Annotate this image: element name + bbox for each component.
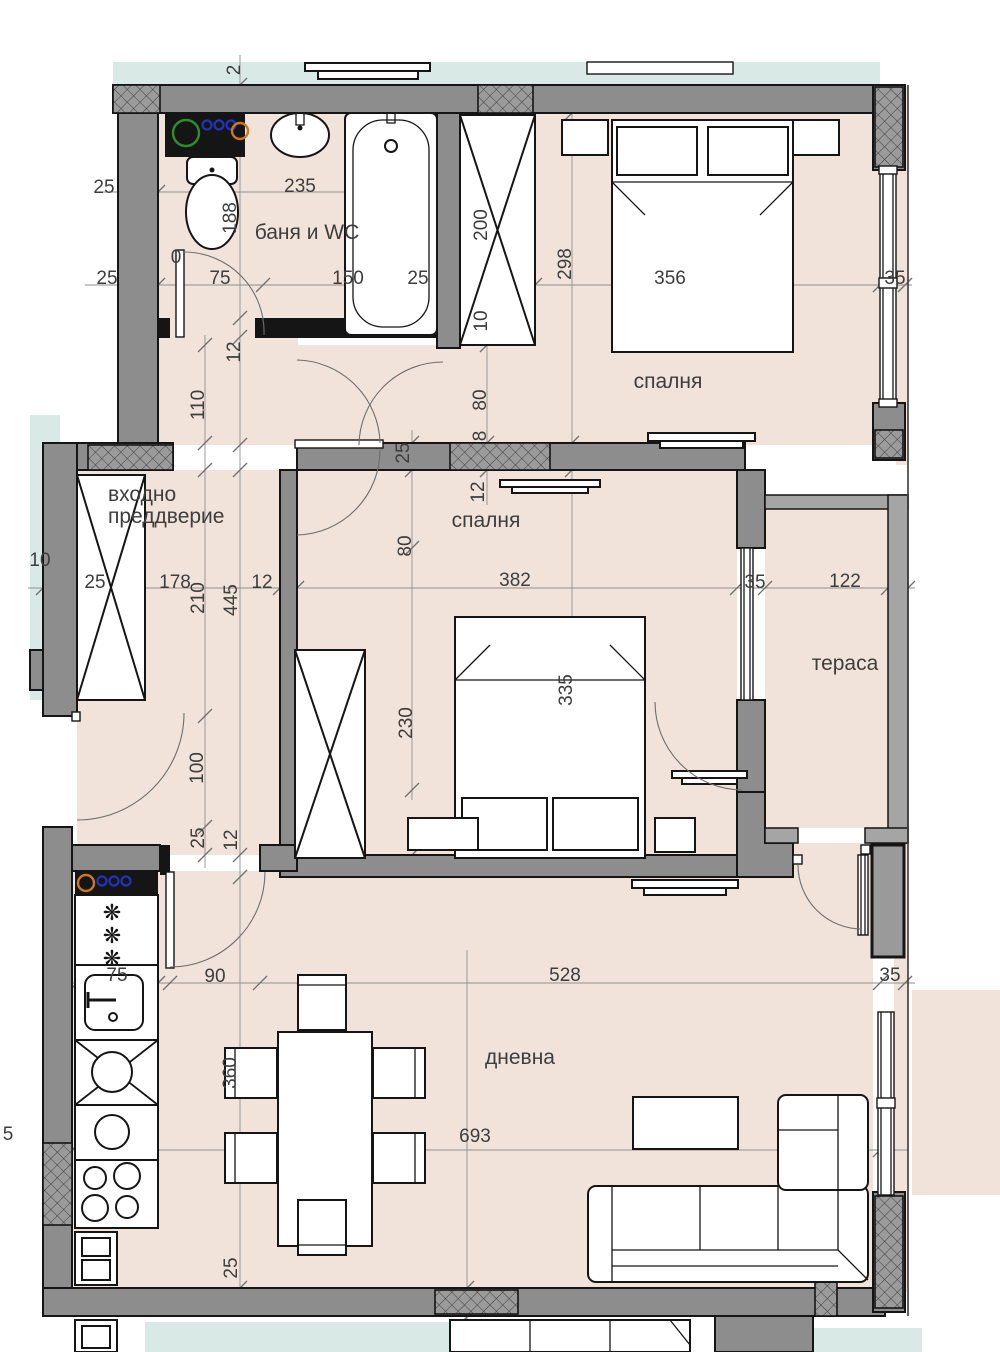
dimension-label: 25	[393, 442, 414, 463]
dimension-label: 188	[220, 202, 241, 234]
dimension-label: 25	[407, 268, 428, 289]
dimension-label: 360	[220, 1057, 241, 1089]
dining-chair	[373, 1048, 425, 1098]
floor-plan-page: ❋ ❋ ❋	[0, 0, 1000, 1352]
dimension-label: 25	[221, 1257, 242, 1278]
dimension-label: 25	[96, 268, 117, 289]
nightstand	[562, 120, 608, 155]
dimension-label: 235	[284, 176, 316, 197]
dimension-label: 356	[654, 268, 686, 289]
dining-chair	[298, 1200, 346, 1255]
double-bed	[455, 617, 645, 858]
upper-window	[587, 62, 733, 74]
radiator	[672, 771, 747, 784]
washbasin	[271, 113, 329, 157]
dimension-label: 0	[171, 247, 182, 268]
living-terrace-window	[858, 855, 868, 935]
dimension-label: 10	[29, 550, 50, 571]
floor-plan-drawing: ❋ ❋ ❋	[0, 0, 1000, 1352]
dimension-label: 230	[396, 707, 417, 739]
dimension-label: 75	[106, 965, 127, 986]
dimension-label: 25	[84, 572, 105, 593]
oven	[75, 1040, 158, 1105]
dimension-label: 150	[332, 268, 364, 289]
dining-chair	[373, 1133, 425, 1183]
dimension-label: 80	[395, 535, 416, 556]
dimension-label: 200	[471, 209, 492, 241]
dimension-label: 12	[224, 341, 245, 362]
dimension-label: 90	[204, 966, 225, 987]
room-label-entrance-hall: преддверие	[108, 505, 224, 528]
room-label-terrace: тераса	[812, 652, 879, 675]
dimension-label: 298	[555, 248, 576, 280]
dimension-label: 10	[471, 310, 492, 331]
dining-chair	[225, 1133, 277, 1183]
appliance	[75, 1105, 158, 1160]
dimension-label: 528	[549, 965, 581, 986]
dimension-label: 445	[221, 584, 242, 616]
dimension-label: 35	[879, 965, 900, 986]
dimension-label: 25	[188, 827, 209, 848]
bedroom2-terrace-window	[741, 548, 753, 700]
double-bed	[612, 120, 793, 352]
neighbour-sofa	[450, 1320, 690, 1352]
room-label-bedroom-2: спалня	[452, 509, 521, 532]
radiator	[632, 880, 738, 895]
stove	[75, 1160, 158, 1228]
dimension-label: 75	[209, 268, 230, 289]
dimension-label: 122	[829, 571, 861, 592]
room-label-bathroom: баня и WC	[255, 221, 360, 244]
neighbour-radiator	[305, 63, 430, 79]
room-label-living-room: дневна	[485, 1046, 555, 1069]
svg-text:❋: ❋	[103, 900, 121, 925]
dimension-label: 12	[221, 829, 242, 850]
dimension-label: 12	[468, 481, 489, 502]
dimension-label: 8	[470, 431, 491, 442]
radiator	[500, 480, 600, 493]
dimension-label: 382	[499, 570, 531, 591]
radiator	[648, 433, 755, 448]
nightstand	[655, 818, 695, 852]
dimension-label: 110	[188, 390, 209, 420]
dimension-label: 5	[3, 1124, 14, 1145]
living-right-window	[877, 1012, 895, 1195]
dimension-label: 35	[884, 268, 905, 289]
balcony-door	[872, 845, 904, 957]
coffee-table	[633, 1097, 738, 1149]
dimension-label: 178	[159, 572, 191, 593]
dimension-label: 80	[470, 389, 491, 410]
wardrobe	[295, 650, 365, 858]
dimension-label: 693	[459, 1126, 491, 1147]
bench	[408, 818, 478, 850]
dimension-label: 35	[744, 572, 765, 593]
room-label-bedroom-1: спалня	[634, 370, 703, 393]
room-label-entrance-hall: входно	[108, 483, 176, 506]
dimension-label: 12	[251, 572, 272, 593]
svg-text:❋: ❋	[103, 923, 121, 948]
dining-chair	[298, 975, 346, 1030]
dimension-label: 25	[93, 177, 114, 198]
dimension-label: 210	[188, 582, 209, 614]
dimension-label: 2	[224, 65, 245, 76]
dimension-label: 335	[556, 674, 577, 706]
dimension-label: 100	[187, 752, 208, 784]
nightstand	[793, 120, 839, 155]
